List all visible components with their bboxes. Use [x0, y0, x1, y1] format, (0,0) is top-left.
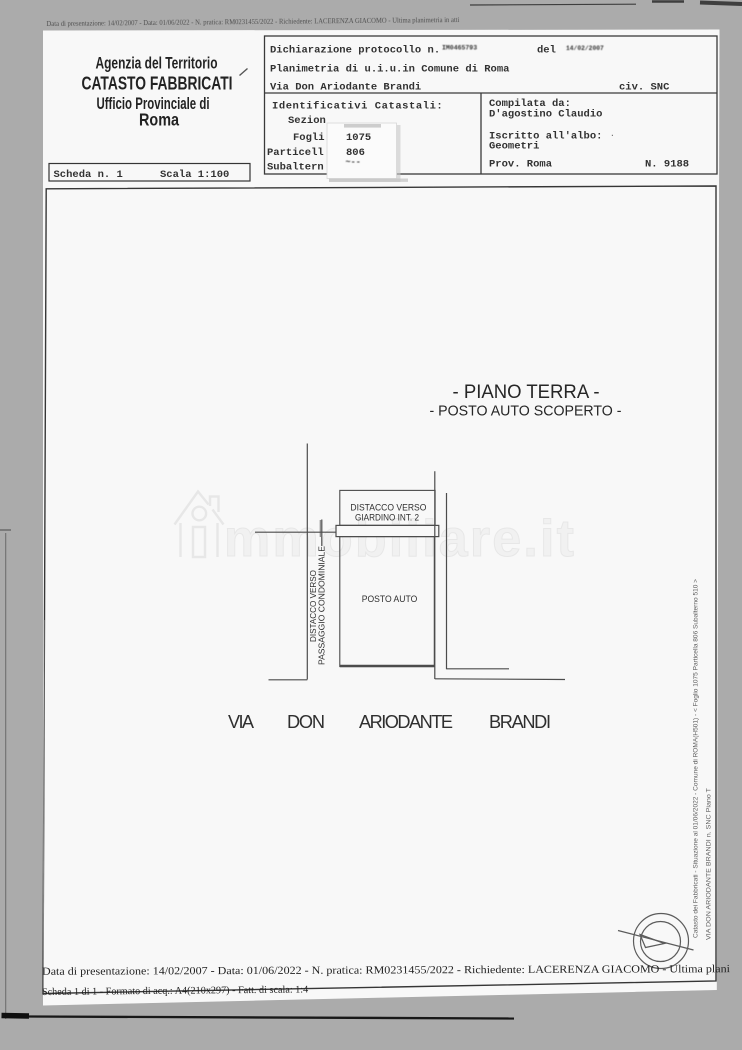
svg-text:1075: 1075	[346, 132, 371, 144]
svg-text:BRANDI: BRANDI	[489, 712, 551, 732]
svg-text:Planimetria di u.i.u.in Comune: Planimetria di u.i.u.in Comune di Roma	[270, 64, 510, 76]
svg-text:DON: DON	[287, 712, 325, 732]
svg-text:VIA: VIA	[228, 712, 255, 732]
svg-text:CATASTO FABBRICATI: CATASTO FABBRICATI	[82, 74, 233, 94]
svg-text:Subaltern: Subaltern	[267, 162, 324, 174]
svg-text:POSTO AUTO: POSTO AUTO	[362, 594, 418, 605]
svg-text:Dichiarazione protocollo n.: Dichiarazione protocollo n.	[270, 45, 440, 57]
svg-text:PASSAGGIO CONDOMINIALE: PASSAGGIO CONDOMINIALE	[317, 546, 327, 665]
svg-text:VIA DON ARIODANTE BRANDI n. SN: VIA DON ARIODANTE BRANDI n. SNC Piano T	[706, 788, 713, 940]
svg-text:N. 9188: N. 9188	[645, 159, 689, 171]
svg-text:14/02/2007: 14/02/2007	[566, 45, 604, 52]
svg-text:D'agostino Claudio: D'agostino Claudio	[489, 109, 602, 121]
svg-text:civ. SNC: civ. SNC	[619, 82, 670, 94]
svg-text:- PIANO TERRA -: - PIANO TERRA -	[453, 381, 600, 403]
svg-text:Catasto dei Fabbricati - Situa: Catasto dei Fabbricati - Situazione al 0…	[693, 579, 700, 938]
svg-text:.: .	[610, 130, 615, 139]
svg-text:ARIODANTE: ARIODANTE	[359, 712, 453, 732]
svg-text:~--: ~--	[346, 157, 361, 167]
svg-text:Identificativi Catastali:: Identificativi Catastali:	[272, 101, 443, 113]
svg-text:Roma: Roma	[139, 109, 179, 129]
svg-text:Agenzia del Territorio: Agenzia del Territorio	[96, 54, 218, 73]
svg-text:Via Don Ariodante Brandi: Via Don Ariodante Brandi	[270, 82, 421, 94]
svg-text:IM0465793: IM0465793	[442, 45, 477, 52]
svg-text:Scheda n. 1: Scheda n. 1	[54, 169, 123, 181]
svg-text:Prov. Roma: Prov. Roma	[489, 159, 553, 171]
svg-text:Fogli: Fogli	[293, 132, 325, 144]
svg-text:Scala 1:100: Scala 1:100	[160, 169, 229, 181]
svg-text:- POSTO AUTO SCOPERTO -: - POSTO AUTO SCOPERTO -	[430, 403, 622, 420]
svg-text:Particell: Particell	[267, 147, 324, 159]
svg-text:Sezion: Sezion	[288, 115, 326, 127]
svg-text:Geometri: Geometri	[489, 141, 539, 153]
svg-text:GIARDINO INT. 2: GIARDINO INT. 2	[355, 512, 419, 523]
svg-text:del: del	[537, 45, 556, 57]
